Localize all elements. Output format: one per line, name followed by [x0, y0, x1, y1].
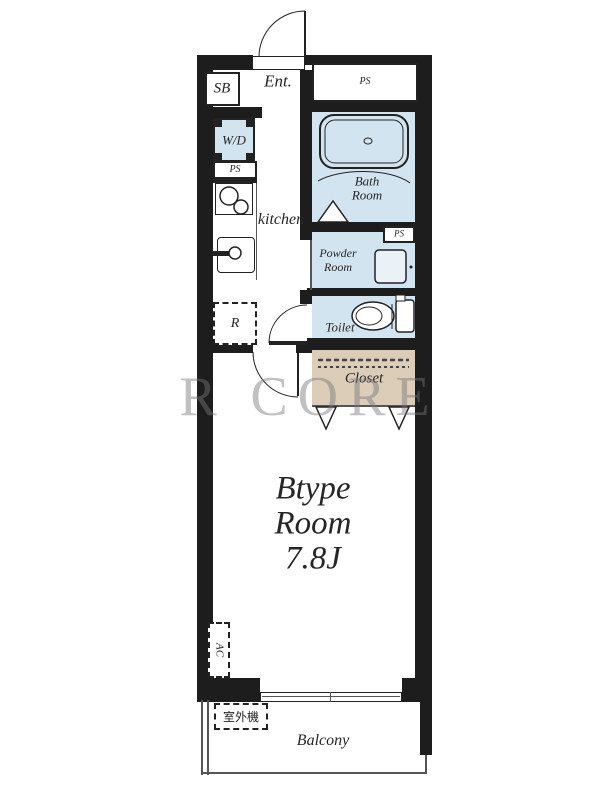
sliding-window-rail: [262, 696, 400, 697]
powder-room-label-line2: Room: [324, 261, 352, 273]
balcony-label: Balcony: [297, 733, 349, 749]
kitchen-counter-edge: [256, 180, 257, 280]
entrance-label: Ent.: [264, 73, 292, 90]
closet-label: Closet: [345, 372, 383, 387]
washer-dryer-label: W/D: [222, 134, 246, 147]
ps-toilet-label: PS: [394, 230, 404, 239]
wall-right: [415, 55, 432, 702]
wall-balcony-right: [420, 702, 432, 755]
room-type-label-line1: Btype: [275, 473, 350, 506]
wall-bottom-right: [402, 678, 432, 702]
refrigerator-label: R: [231, 317, 240, 331]
toilet-label: Toilet: [325, 321, 354, 334]
wall-left: [197, 55, 213, 700]
bath-room-label-line1: Bath: [355, 175, 380, 188]
balcony-rail-bottom: [201, 772, 427, 774]
ac-label: AC: [214, 643, 225, 657]
floorplan: Ent. PS SB W/D PS kitchen Bath Room Powd…: [0, 0, 600, 800]
closet-door-icon: [389, 407, 409, 429]
kitchen-label: kitchen: [258, 212, 304, 228]
outdoor-unit-label: 室外機: [223, 711, 259, 723]
powder-room-label-line1: Powder: [319, 247, 356, 259]
powder-room-left-line: [310, 240, 312, 290]
sliding-window-center: [330, 692, 331, 702]
room-type-label-line2: Room: [275, 508, 352, 541]
mainroom-door-arc: [253, 352, 298, 397]
balcony-rail-right: [425, 755, 427, 774]
room-size-label: 7.8J: [285, 543, 341, 576]
bath-room-label-line2: Room: [352, 189, 382, 202]
entrance-door-arc: [259, 11, 305, 57]
ps-kitchen-label: PS: [229, 165, 240, 175]
sink-box: [217, 237, 255, 273]
wall-toilet-bottom: [307, 338, 415, 350]
balcony-rail-left-inner: [207, 700, 209, 775]
ps-top-label: PS: [359, 77, 370, 87]
closet-door-icon: [316, 407, 336, 429]
shoe-box-label: SB: [214, 82, 231, 97]
balcony-rail-left-outer: [201, 700, 203, 775]
closet-bottom-line: [312, 405, 415, 407]
wall-bottom-left: [197, 678, 260, 702]
wall-mainroom-top-left: [213, 345, 253, 353]
wall-powder-bottom: [307, 288, 415, 296]
toilet-door-arc: [269, 305, 307, 343]
sliding-window: [260, 692, 402, 702]
entrance-threshold: [252, 56, 305, 70]
wall-entrance-bottom: [197, 107, 262, 118]
stove-box: [215, 183, 253, 215]
bath-room-area: [312, 112, 415, 222]
